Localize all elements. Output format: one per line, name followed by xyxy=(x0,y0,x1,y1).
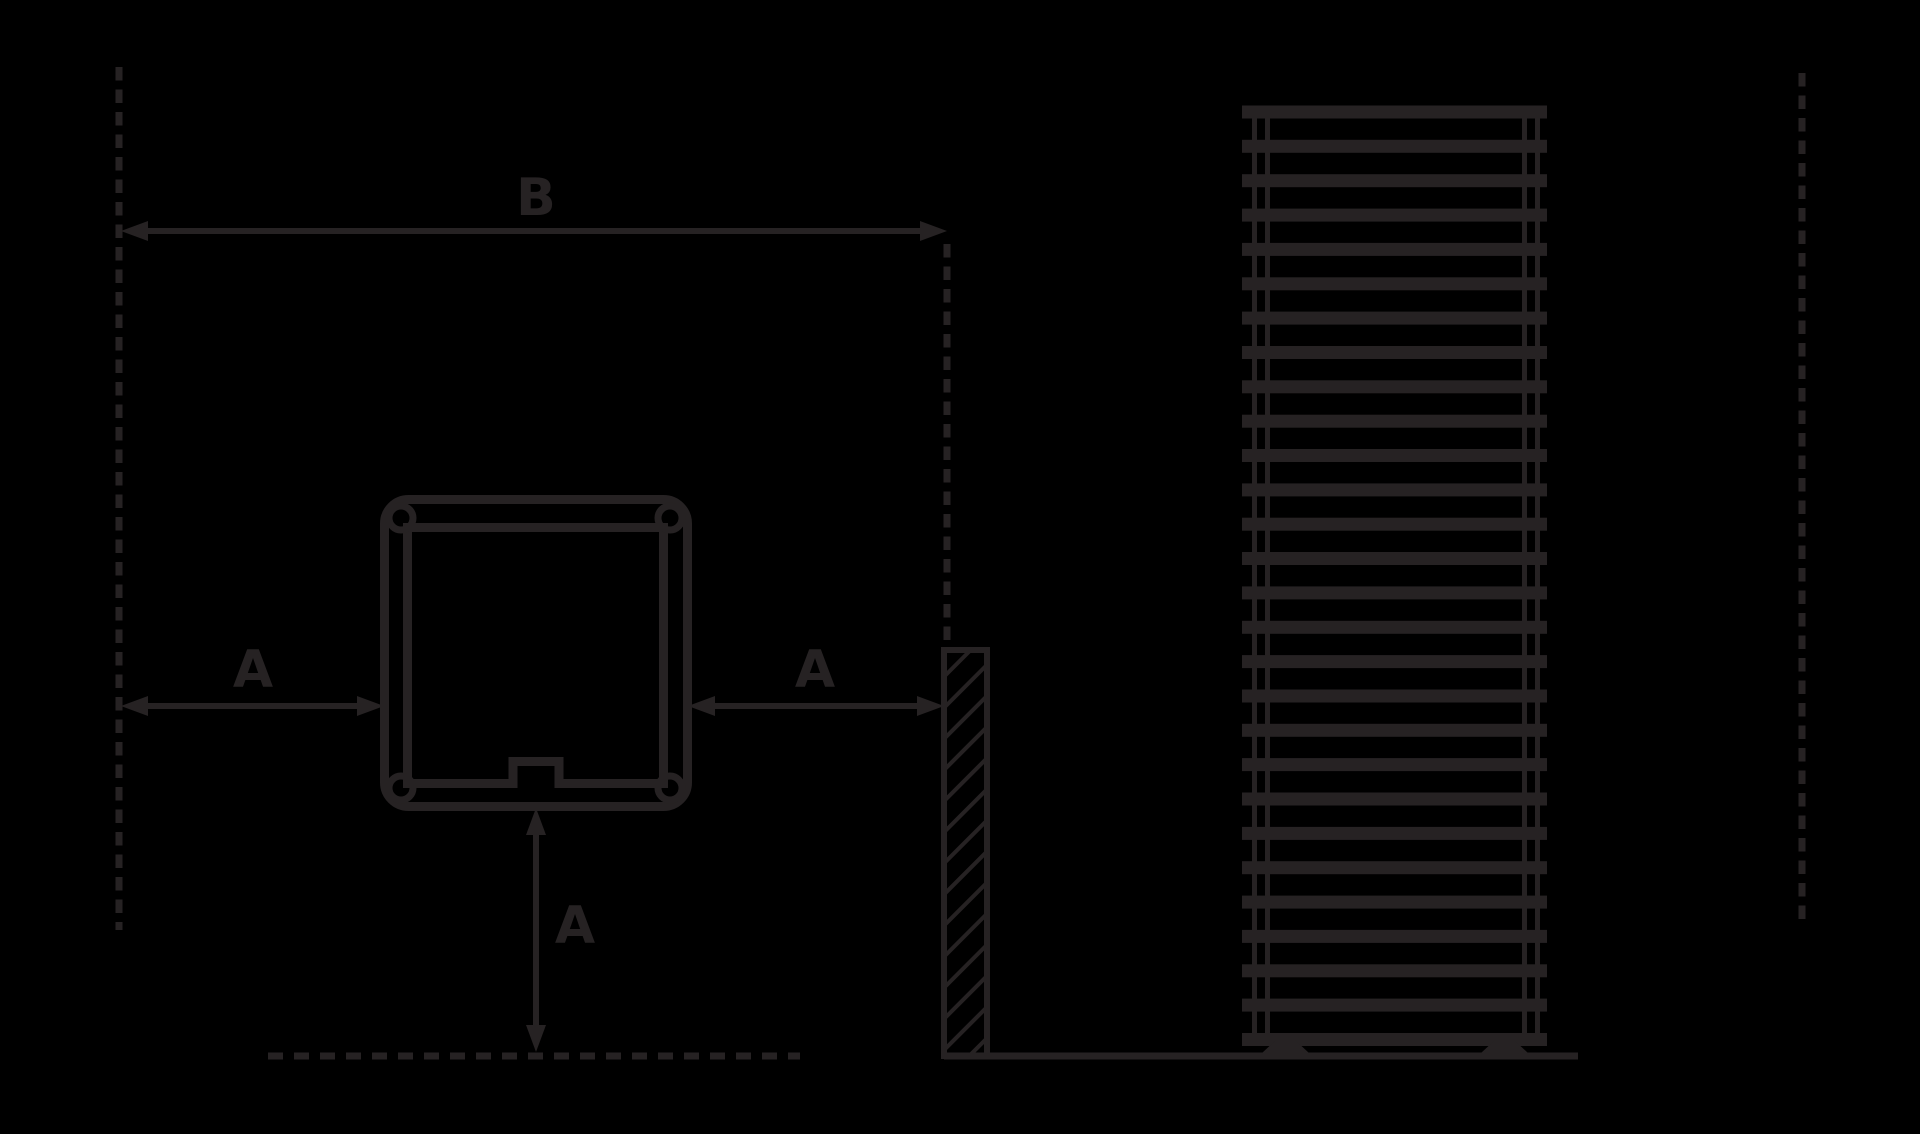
radiator-bar xyxy=(1242,758,1547,771)
radiator-bar xyxy=(1242,930,1547,943)
arrowhead-down-icon xyxy=(526,1025,546,1052)
diagram-canvas: B A A A xyxy=(0,0,1920,1134)
arrowhead-right-icon xyxy=(920,221,947,241)
arrowhead-left-icon xyxy=(688,696,715,716)
radiator-bar xyxy=(1242,277,1547,290)
radiator-bar xyxy=(1242,724,1547,737)
radiator-bar xyxy=(1242,999,1547,1012)
radiator-bar xyxy=(1242,793,1547,806)
wall-hatch-fill xyxy=(944,650,987,1056)
radiator-bars xyxy=(1242,106,1547,1047)
radiator-bar xyxy=(1242,415,1547,428)
screw-hole-top-right-icon xyxy=(658,506,682,530)
radiator-bar xyxy=(1242,346,1547,359)
radiator-bar xyxy=(1242,140,1547,153)
radiator-bar xyxy=(1242,106,1547,119)
radiator-bar xyxy=(1242,449,1547,462)
radiator-bar xyxy=(1242,174,1547,187)
mounting-plate-inner-frame xyxy=(408,528,664,784)
dimension-a-bottom-label: A xyxy=(555,896,595,956)
arrowhead-right-icon xyxy=(917,696,944,716)
arrowhead-right-icon xyxy=(357,696,384,716)
wall-section xyxy=(944,650,987,1056)
radiator-bar xyxy=(1242,964,1547,977)
radiator-bar xyxy=(1242,312,1547,325)
radiator xyxy=(1242,106,1547,1054)
radiator-bar xyxy=(1242,586,1547,599)
radiator-bar xyxy=(1242,655,1547,668)
dimension-a-bottom-arrow: A xyxy=(526,808,595,1052)
radiator-bar xyxy=(1242,827,1547,840)
radiator-bar xyxy=(1242,483,1547,496)
radiator-bar xyxy=(1242,690,1547,703)
radiator-bar xyxy=(1242,552,1547,565)
radiator-bar xyxy=(1242,209,1547,222)
screw-hole-top-left-icon xyxy=(389,506,413,530)
radiator-bar xyxy=(1242,243,1547,256)
dimension-a-right-arrow: A xyxy=(688,640,944,716)
dimension-b-label: B xyxy=(516,168,556,228)
dimension-b-arrow: B xyxy=(121,168,947,241)
radiator-bar xyxy=(1242,861,1547,874)
radiator-bar xyxy=(1242,518,1547,531)
arrowhead-up-icon xyxy=(526,808,546,835)
radiator-bar xyxy=(1242,380,1547,393)
arrowhead-left-icon xyxy=(121,221,148,241)
mounting-plate xyxy=(385,500,688,807)
radiator-bar xyxy=(1242,896,1547,909)
dimension-a-left-arrow: A xyxy=(121,640,384,716)
arrowhead-left-icon xyxy=(121,696,148,716)
dimension-a-right-label: A xyxy=(795,640,835,700)
radiator-bar xyxy=(1242,621,1547,634)
mounting-clearance-diagram: B A A A xyxy=(0,0,1920,1134)
dimension-a-left-label: A xyxy=(233,640,273,700)
